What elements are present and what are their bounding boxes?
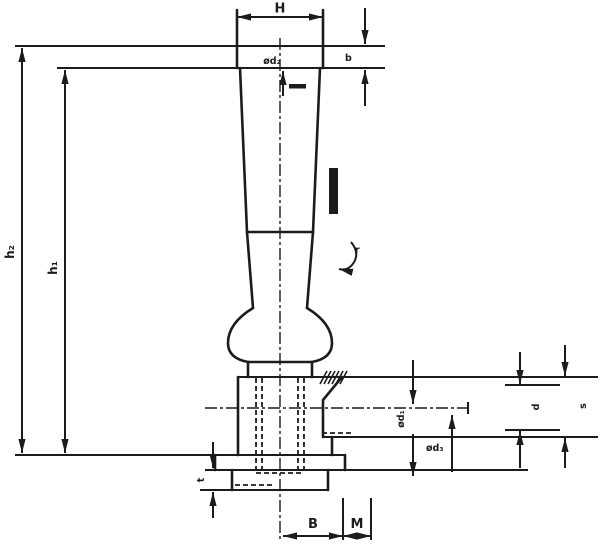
centerlines bbox=[205, 38, 472, 542]
dim-label-counterbore: ød₃ bbox=[426, 443, 444, 454]
dim-label-thread: M bbox=[351, 517, 364, 532]
grip-side-detail bbox=[329, 168, 338, 214]
handle-outline bbox=[215, 10, 347, 490]
dim-label-top-bore: ød₂ bbox=[263, 56, 281, 67]
dimension-counterbore: ød₃ bbox=[426, 415, 452, 472]
dim-label-flange-thickness: t bbox=[196, 477, 207, 482]
handle-dimension-drawing: H b ød₂ h₂ h₁ r t B M bbox=[0, 0, 600, 548]
dimension-base-width: B bbox=[283, 517, 343, 536]
dimension-hole-upper: d bbox=[520, 352, 542, 468]
dim-label-radius: r bbox=[355, 245, 360, 256]
extension-lines bbox=[15, 46, 598, 540]
dim-label-top-width: H bbox=[275, 2, 286, 17]
dim-label-cap-height: b bbox=[345, 53, 352, 64]
dimension-top-width: H bbox=[237, 2, 323, 18]
dimension-outer-height: h₂ bbox=[3, 48, 22, 453]
dim-label-base-width: B bbox=[308, 517, 318, 532]
dim-label-outer-height: h₂ bbox=[3, 245, 17, 259]
radius-leader: r bbox=[339, 242, 360, 270]
dim-label-hole-upper: d bbox=[531, 404, 542, 411]
dimension-hole-lower: s bbox=[565, 345, 589, 468]
dimension-flange-thickness: t bbox=[196, 442, 213, 518]
dim-label-hole-lower: s bbox=[578, 403, 589, 409]
dimension-inner-height: h₁ bbox=[46, 70, 65, 453]
dimension-thread: M bbox=[343, 517, 371, 536]
dimension-cap-height: b bbox=[345, 8, 365, 106]
small-annotation-mark bbox=[289, 84, 306, 89]
hidden-thread-lines bbox=[235, 378, 352, 485]
dim-label-bore: ød₁ bbox=[396, 410, 407, 428]
technical-drawing: H b ød₂ h₂ h₁ r t B M bbox=[0, 0, 600, 548]
dimension-top-bore: ød₂ bbox=[263, 56, 306, 96]
dim-label-inner-height: h₁ bbox=[46, 261, 60, 275]
